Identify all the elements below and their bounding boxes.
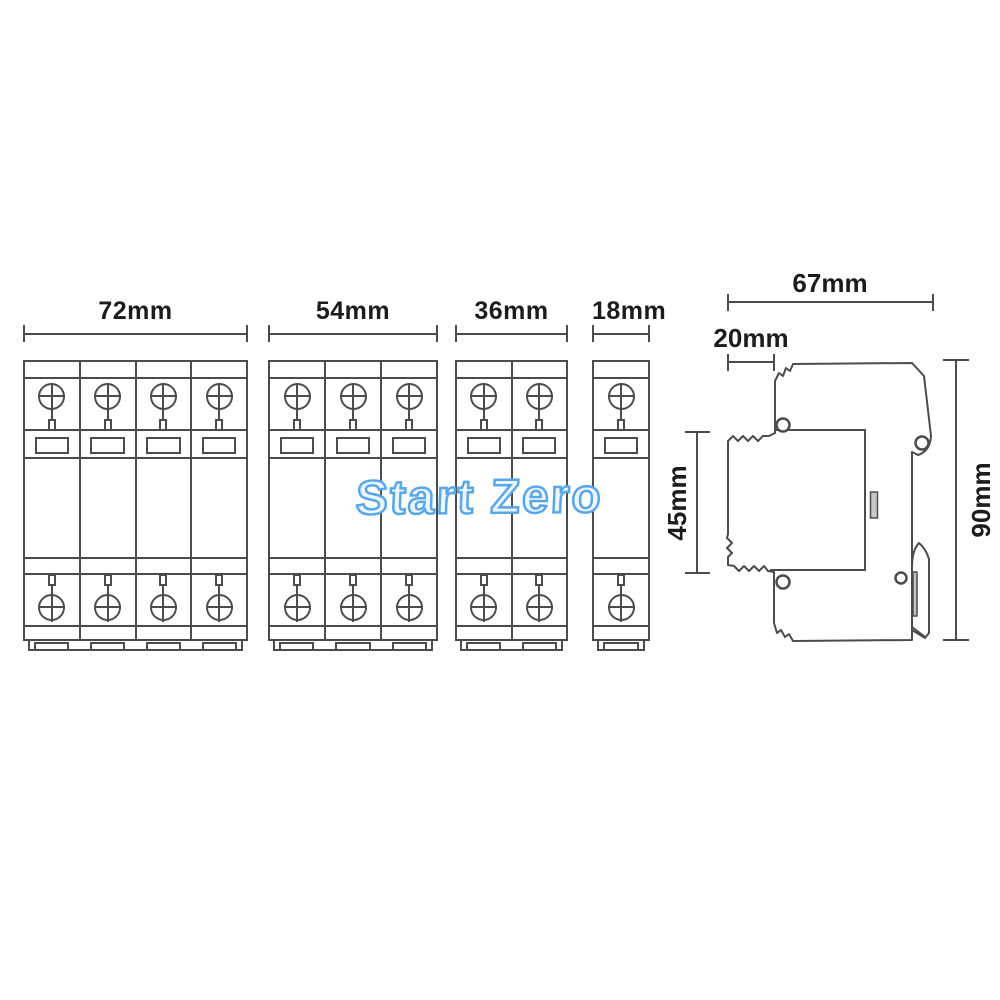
mounting-foot	[146, 642, 181, 651]
screw-stem	[538, 586, 540, 622]
section-divider	[594, 625, 648, 627]
terminal-tab	[293, 574, 301, 586]
dimension-label: 36mm	[455, 297, 568, 326]
section-divider	[457, 457, 511, 459]
terminal-tab	[215, 574, 223, 586]
screw-stem	[408, 383, 410, 419]
label-window	[522, 437, 556, 454]
section-divider	[81, 557, 135, 559]
terminal-tab	[349, 419, 357, 431]
section-divider	[457, 377, 511, 379]
rivet-icon	[916, 437, 929, 450]
section-divider	[192, 377, 246, 379]
dimension-label: 72mm	[23, 297, 248, 326]
section-divider	[326, 457, 380, 459]
terminal-tab	[535, 419, 543, 431]
mounting-foot	[34, 642, 69, 651]
section-divider	[81, 377, 135, 379]
dimension-90mm: 90mm	[943, 360, 996, 640]
pole	[270, 362, 326, 639]
screw-stem	[620, 383, 622, 419]
terminal-tab	[159, 574, 167, 586]
section-divider	[457, 557, 511, 559]
screw-slot	[470, 606, 497, 608]
screw-slot	[608, 606, 635, 608]
screw-slot	[206, 395, 233, 397]
screw-slot	[396, 395, 423, 397]
dimension-label: 18mm	[592, 297, 650, 326]
section-divider	[137, 377, 191, 379]
dimension-diagram: 72mm 54mm	[0, 0, 1000, 1000]
section-divider	[81, 457, 135, 459]
label-window	[280, 437, 315, 454]
terminal-tab	[480, 419, 488, 431]
screw-stem	[408, 586, 410, 622]
dimension-tick	[436, 325, 438, 342]
watermark: Start Zero	[355, 469, 604, 526]
screw-stem	[162, 383, 164, 419]
section-divider	[137, 557, 191, 559]
mounting-foot	[603, 642, 639, 651]
section-divider	[270, 457, 324, 459]
section-divider	[594, 377, 648, 379]
pole	[25, 362, 81, 639]
section-divider	[326, 377, 380, 379]
dimension-tick	[566, 325, 568, 342]
screw-stem	[218, 586, 220, 622]
screw-stem	[296, 586, 298, 622]
terminal-tab	[159, 419, 167, 431]
screw-slot	[150, 606, 177, 608]
terminal-tab	[617, 419, 625, 431]
screw-stem	[162, 586, 164, 622]
mounting-foot	[392, 642, 427, 651]
dimension-label: 20mm	[713, 323, 788, 353]
mounting-foot	[466, 642, 501, 651]
rivet-icon	[896, 573, 907, 584]
dimension-label: 54mm	[268, 297, 438, 326]
section-divider	[326, 557, 380, 559]
section-divider	[192, 457, 246, 459]
dimension-line	[23, 333, 248, 335]
section-divider	[81, 625, 135, 627]
section-divider	[594, 457, 648, 459]
dimension-20mm: 20mm	[713, 323, 788, 371]
section-divider	[270, 625, 324, 627]
section-divider	[25, 557, 79, 559]
label-window	[336, 437, 371, 454]
screw-stem	[483, 586, 485, 622]
terminal-tab	[535, 574, 543, 586]
section-divider	[270, 377, 324, 379]
screw-stem	[107, 383, 109, 419]
section-divider	[513, 457, 567, 459]
screw-slot	[94, 606, 121, 608]
dimension-line	[592, 333, 650, 335]
dimension-tick	[246, 325, 248, 342]
mounting-foot	[522, 642, 557, 651]
section-divider	[137, 625, 191, 627]
section-divider	[25, 457, 79, 459]
screw-slot	[396, 606, 423, 608]
terminal-tab	[104, 574, 112, 586]
dimension-45mm: 45mm	[662, 432, 710, 573]
dimension-tick	[23, 325, 25, 342]
pole	[192, 362, 246, 639]
screw-stem	[483, 383, 485, 419]
section-divider	[594, 557, 648, 559]
mounting-foot	[335, 642, 370, 651]
section-divider	[513, 625, 567, 627]
dimension-tick	[455, 325, 457, 342]
terminal-tab	[405, 419, 413, 431]
pole	[137, 362, 193, 639]
screw-slot	[150, 395, 177, 397]
label-window	[90, 437, 124, 454]
pole	[81, 362, 137, 639]
rivet-icon	[777, 419, 790, 432]
label-window	[35, 437, 69, 454]
screw-slot	[608, 395, 635, 397]
terminal-tab	[617, 574, 625, 586]
screw-slot	[470, 395, 497, 397]
screw-slot	[526, 395, 553, 397]
screw-stem	[51, 586, 53, 622]
screw-stem	[352, 383, 354, 419]
screw-slot	[340, 395, 367, 397]
screw-slot	[94, 395, 121, 397]
section-divider	[457, 625, 511, 627]
terminal-tab	[48, 419, 56, 431]
section-divider	[270, 557, 324, 559]
section-divider	[382, 557, 436, 559]
section-divider	[382, 377, 436, 379]
terminal-tab	[480, 574, 488, 586]
section-divider	[25, 625, 79, 627]
label-window	[202, 437, 236, 454]
label-window	[146, 437, 180, 454]
section-divider	[326, 625, 380, 627]
screw-slot	[284, 606, 311, 608]
section-divider	[137, 457, 191, 459]
terminal-tab	[405, 574, 413, 586]
mounting-foot	[90, 642, 125, 651]
mounting-foot	[202, 642, 237, 651]
screw-stem	[352, 586, 354, 622]
label-window	[467, 437, 501, 454]
section-divider	[513, 377, 567, 379]
side-view: 67mm 20mm 45mm 90mm	[650, 250, 1000, 670]
dimension-label: 45mm	[662, 465, 692, 540]
section-divider	[192, 557, 246, 559]
terminal-tab	[215, 419, 223, 431]
side-housing-outline	[727, 363, 931, 641]
screw-stem	[51, 383, 53, 419]
section-divider	[25, 377, 79, 379]
section-divider	[382, 457, 436, 459]
front-block-4-pole: 72mm	[23, 295, 248, 660]
section-divider	[192, 625, 246, 627]
screw-slot	[38, 606, 65, 608]
label-window	[604, 437, 639, 454]
module-front-outline	[23, 360, 248, 641]
dimension-label: 90mm	[966, 462, 996, 537]
terminal-tab	[48, 574, 56, 586]
terminal-tab	[293, 419, 301, 431]
dimension-tick	[268, 325, 270, 342]
dimension-67mm: 67mm	[728, 268, 933, 311]
rivet-icon	[777, 576, 790, 589]
side-slot	[871, 492, 878, 518]
terminal-tab	[349, 574, 357, 586]
dimension-label: 67mm	[792, 268, 867, 298]
screw-slot	[206, 606, 233, 608]
label-window	[392, 437, 427, 454]
section-divider	[513, 557, 567, 559]
section-divider	[382, 625, 436, 627]
screw-stem	[296, 383, 298, 419]
screw-stem	[218, 383, 220, 419]
screw-stem	[107, 586, 109, 622]
terminal-tab	[104, 419, 112, 431]
screw-stem	[538, 383, 540, 419]
mounting-foot	[279, 642, 314, 651]
screw-slot	[340, 606, 367, 608]
dimension-tick	[592, 325, 594, 342]
screw-stem	[620, 586, 622, 622]
dimension-line	[455, 333, 568, 335]
screw-slot	[284, 395, 311, 397]
din-clip-spring	[913, 572, 917, 616]
screw-slot	[38, 395, 65, 397]
dimension-line	[268, 333, 438, 335]
screw-slot	[526, 606, 553, 608]
